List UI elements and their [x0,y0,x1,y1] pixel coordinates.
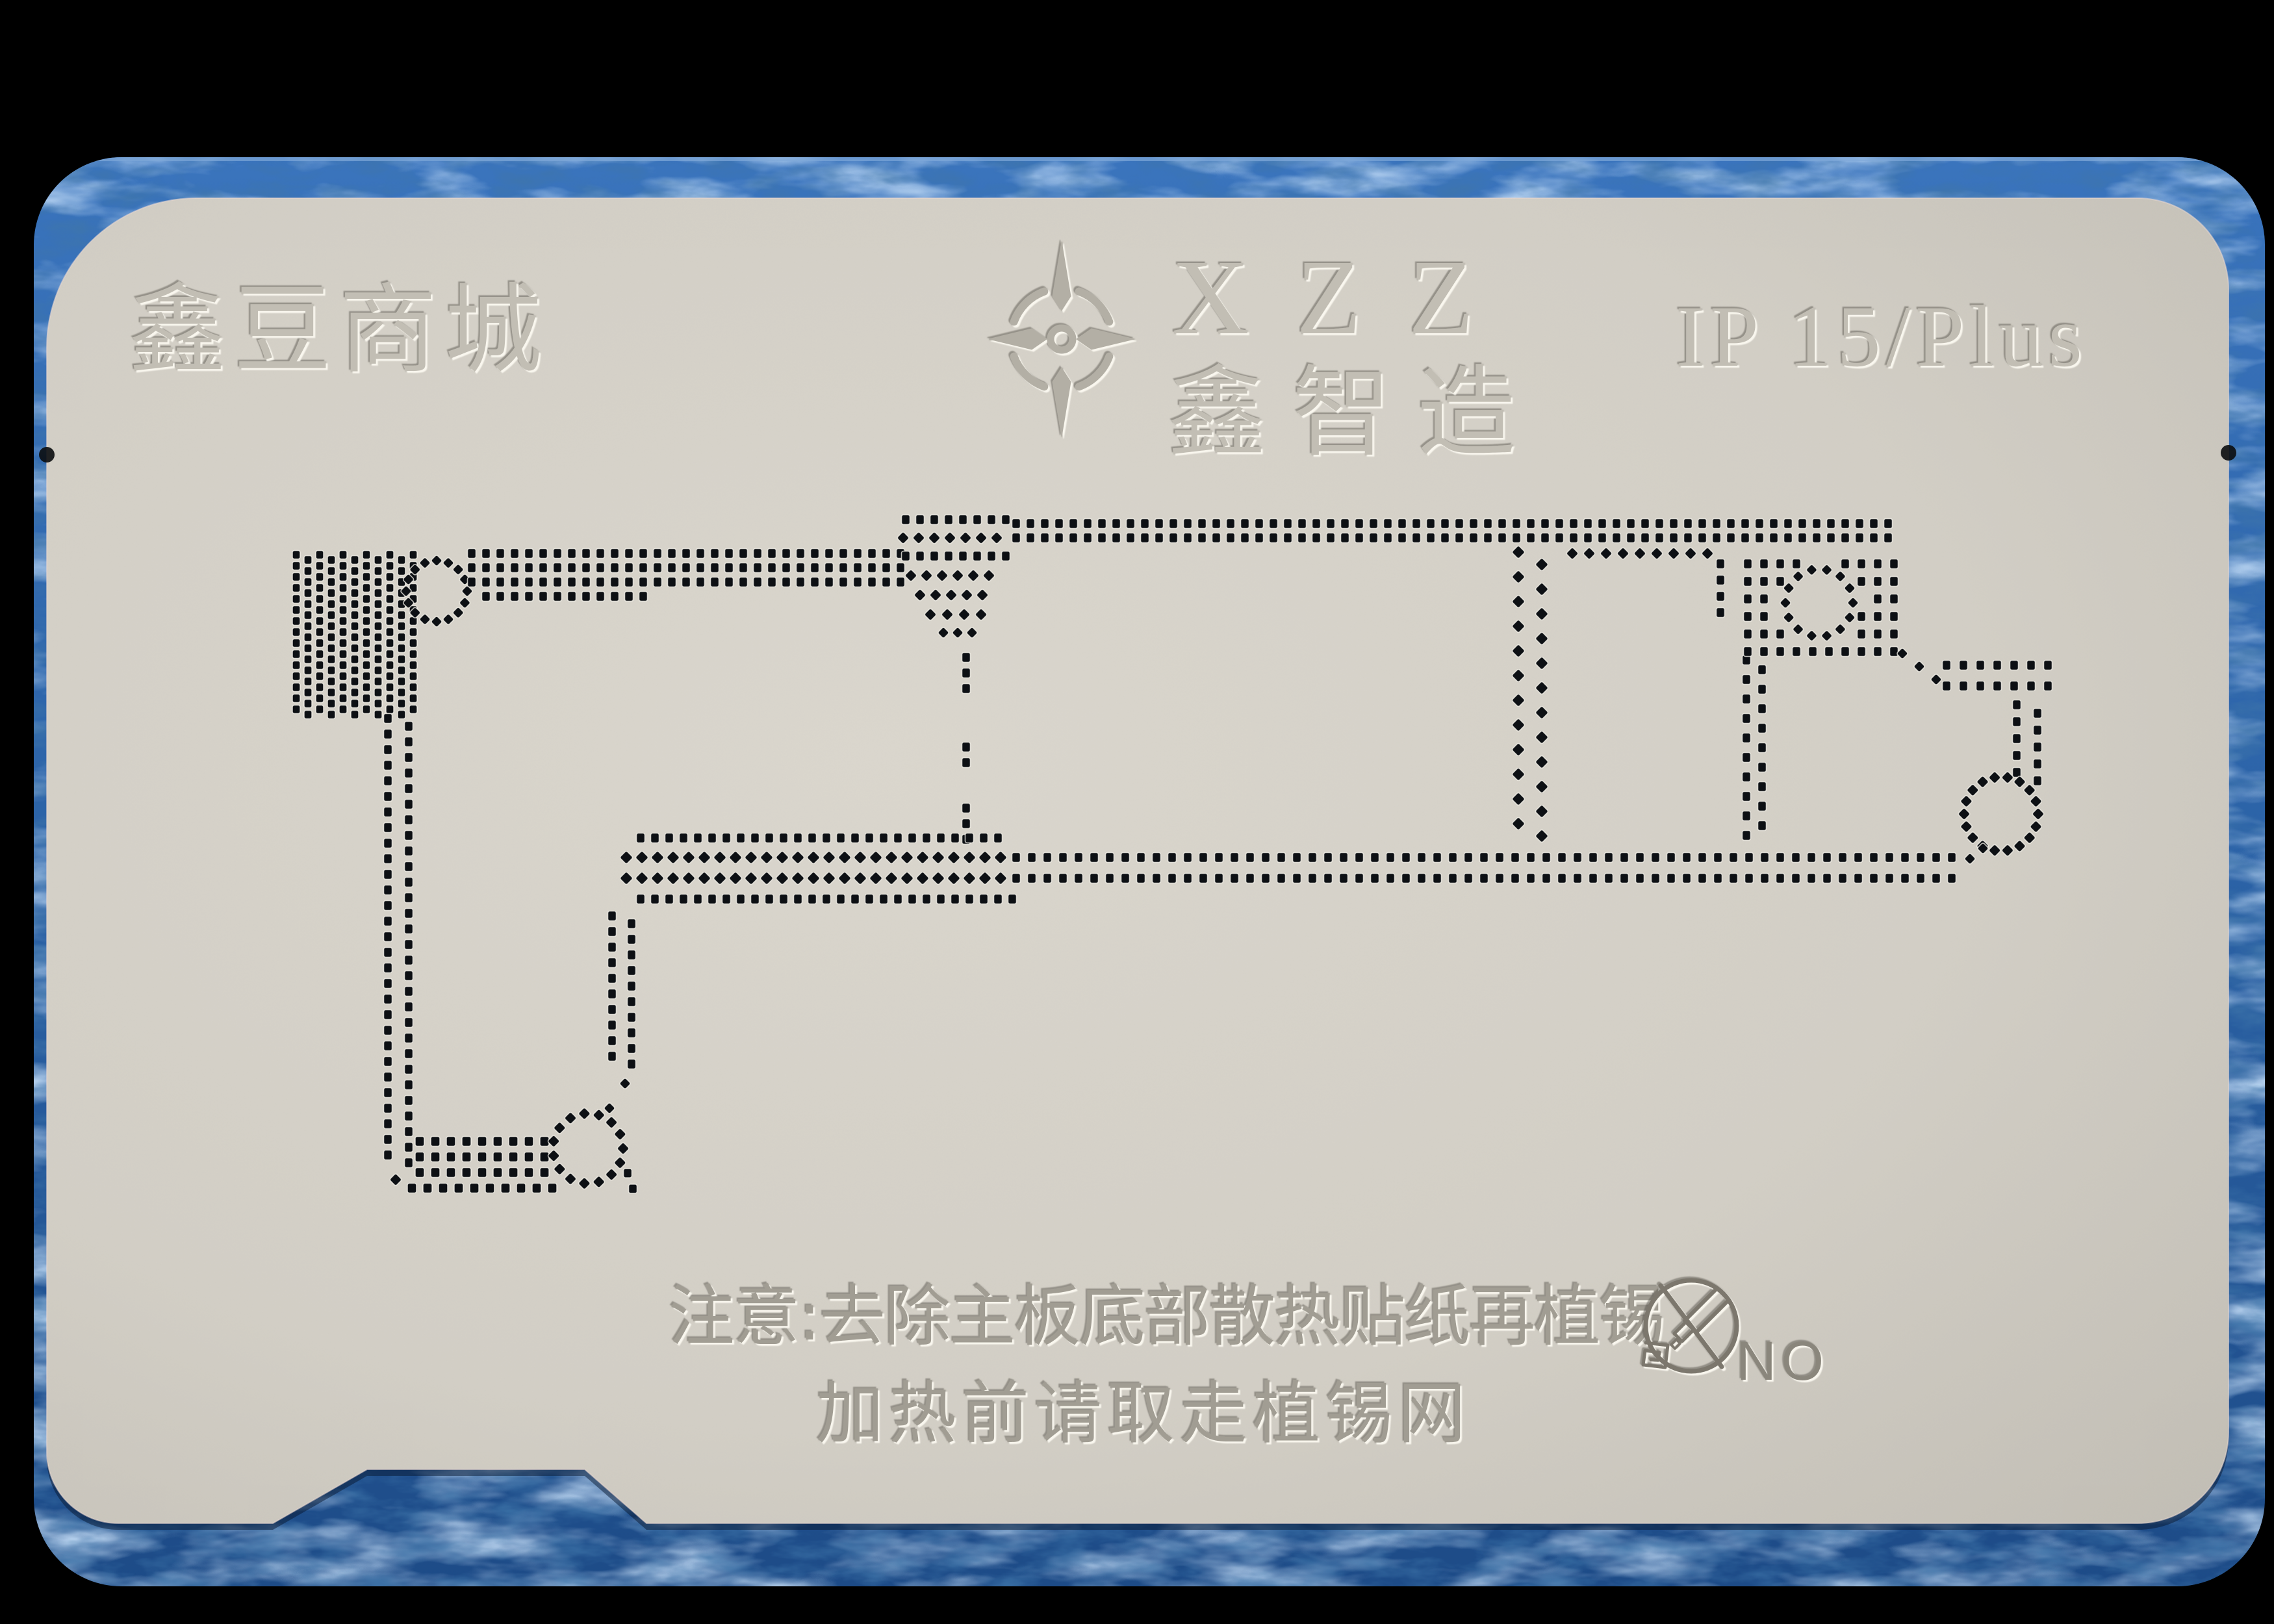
brand-text: 鑫豆商城 [129,274,550,387]
logo-brand-text: XZZ [1172,238,1521,357]
alignment-notch-left [39,447,55,463]
warning-line1: 注意:去除主板底部散热贴纸再植锡 [669,1278,1664,1356]
alignment-notch-right [2221,445,2236,461]
warning-line2: 加热前请取走植锡网 [816,1374,1471,1453]
stencil-product-photo: 鑫豆商城 XZZ 鑫智造 IP 15/Plus 注意:去除主板底部散热贴纸再植锡… [0,0,2274,1624]
model-label: IP 15/Plus [1676,288,2088,385]
logo-sub-text: 鑫智造 [1168,355,1542,470]
no-label: NO [1737,1330,1829,1391]
